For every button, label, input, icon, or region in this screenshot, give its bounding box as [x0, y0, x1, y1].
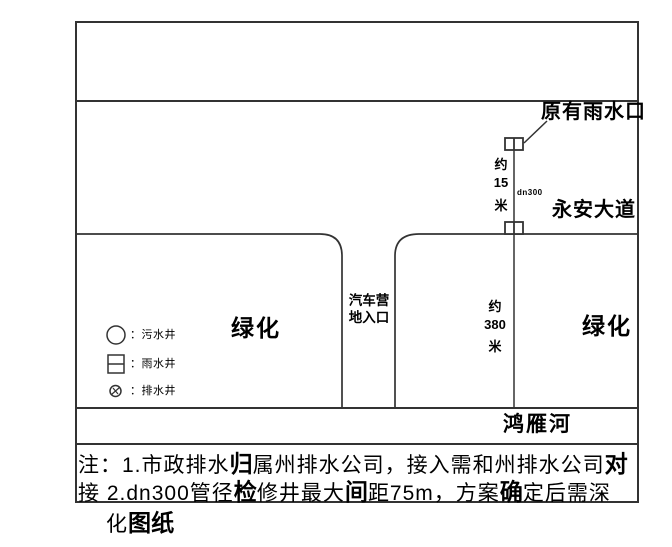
legend-label-rain-well: ：雨水井 [130, 359, 176, 370]
note-segment: 接 2.dn300管径 [78, 482, 234, 505]
river-name-label: 鸿雁河 [503, 414, 572, 435]
drain-well-icon-hatch [112, 388, 120, 395]
sewage-well-icon [107, 326, 125, 344]
legend-symbols [107, 326, 125, 397]
note-segment: 确 [500, 479, 523, 505]
legend-label-sewage-well: ：污水井 [130, 330, 176, 341]
rain-inlet-leader-line [524, 121, 547, 143]
note-segment: 归 [230, 451, 253, 477]
entrance-label: 汽车营 地入口 [342, 292, 396, 326]
existing-rain-inlet-label: 原有雨水口 [541, 102, 646, 122]
note-segment: 距75m，方案 [368, 482, 500, 505]
dim380-unit: 米 [488, 340, 501, 353]
pipe-run [514, 121, 547, 408]
note-segment: 图纸 [128, 510, 174, 536]
road-name-label: 永安大道 [552, 200, 636, 220]
dim15-unit: 米 [494, 199, 507, 212]
dim380-value: 380 [484, 318, 506, 331]
dim15-value: 15 [494, 176, 508, 189]
note-line-1: 注：1.市政排水归属州排水公司，接入需和州排水公司对 [78, 450, 628, 479]
note-segment: 属州排水公司，接入需和州排水公司 [253, 454, 605, 477]
note-segment: 定后需深 [523, 482, 611, 505]
road-edge-left-with-fillet [76, 234, 342, 408]
note-line-2: 接 2.dn300管径检修井最大间距75m，方案确定后需深 [78, 478, 611, 507]
note-segment: 修井最大 [257, 482, 345, 505]
dim380-prefix: 约 [488, 300, 501, 313]
dimension-15m: 约 15 米 [488, 158, 514, 217]
entrance-label-line2: 地入口 [342, 309, 396, 326]
note-segment: 注：1.市政排水 [78, 454, 230, 477]
note-segment: 间 [345, 479, 368, 505]
note-segment: 检 [234, 479, 257, 505]
green-area-left-label: 绿化 [231, 317, 281, 340]
pipe-diameter-label: dn300 [517, 189, 543, 197]
green-area-right-label: 绿化 [582, 315, 632, 338]
note-segment: 对 [605, 451, 628, 477]
note-segment: 化 [106, 513, 128, 536]
legend-label-drain-well: ：排水井 [130, 386, 176, 397]
entrance-label-line1: 汽车营 [342, 292, 396, 309]
note-line-3: 化图纸 [106, 509, 174, 538]
dim15-prefix: 约 [494, 158, 507, 171]
dimension-380m: 约 380 米 [481, 300, 509, 358]
site-plan-drawing: 原有雨水口 永安大道 约 15 米 dn300 约 380 米 绿化 绿化 汽车… [0, 0, 672, 547]
